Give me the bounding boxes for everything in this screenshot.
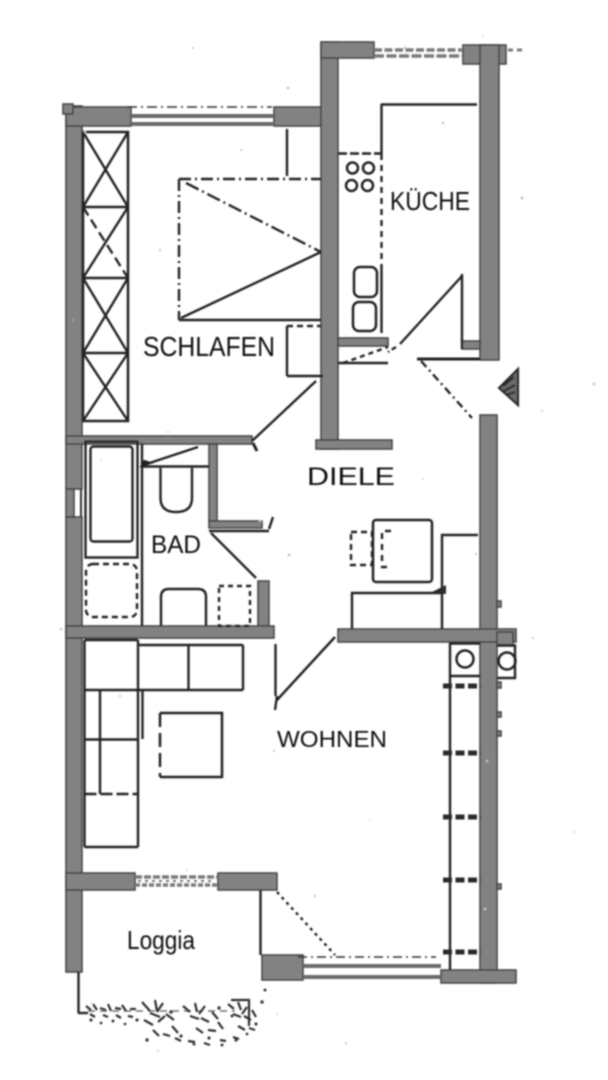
svg-text:DIELE: DIELE <box>307 463 395 491</box>
svg-text:KÜCHE: KÜCHE <box>390 186 470 216</box>
svg-text:SCHLAFEN: SCHLAFEN <box>143 331 275 362</box>
svg-text:BAD: BAD <box>151 531 201 559</box>
svg-text:WOHNEN: WOHNEN <box>277 726 387 752</box>
svg-text:Loggia: Loggia <box>127 925 195 955</box>
